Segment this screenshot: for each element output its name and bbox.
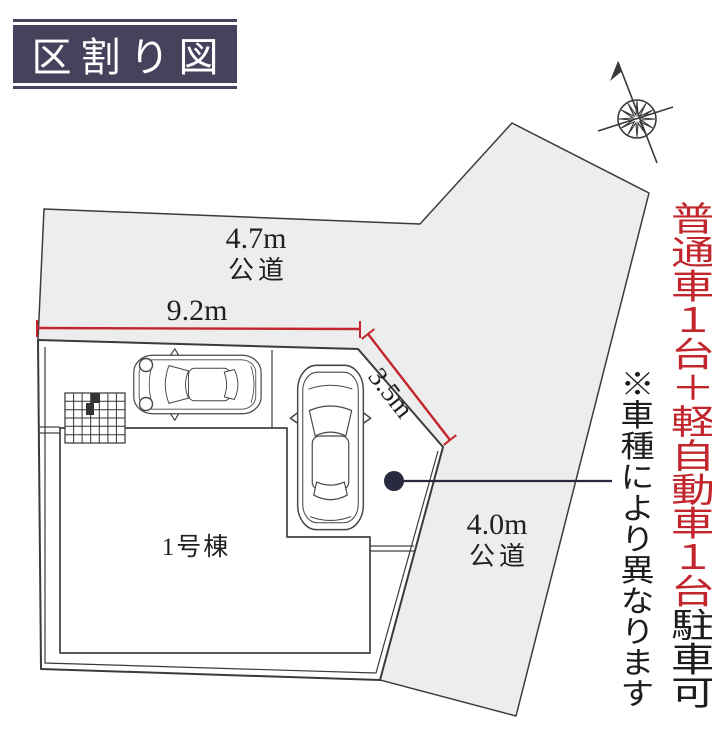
frontage-dimension-label: 9.2m (122, 294, 272, 328)
building-label: 1号棟 (130, 534, 262, 562)
road-right-label: 4.0m 公道 (440, 508, 554, 571)
road-right-width: 4.0m (440, 508, 554, 542)
road-right-type: 公道 (440, 542, 554, 571)
site-plan-drawing (0, 0, 712, 745)
regular-car-top-view-icon (290, 365, 370, 529)
page-title-box: 区割り図 (13, 19, 237, 89)
title-bottom-rule (13, 83, 237, 86)
kei-car-top-view-icon (134, 349, 261, 421)
road-top-width: 4.7m (200, 222, 312, 256)
page-title: 区割り図 (23, 25, 228, 83)
parking-capacity-suffix: 駐車可 (664, 608, 712, 710)
compass-north-icon (598, 61, 673, 163)
parking-capacity-note: 普通車１台＋軽自動車１台駐車可 (666, 201, 710, 709)
parking-disclaimer: ※車種により異なります (616, 368, 650, 708)
title-top-rule (13, 22, 237, 25)
road-top-type: 公道 (200, 256, 312, 285)
plot-layout-page: 区割り図 4.7m 公道 9.2m 3.5m 4.0m 公道 1号棟 普通車１台… (0, 0, 712, 745)
parking-capacity-highlight: 普通車１台＋軽自動車１台 (664, 201, 712, 608)
leader-dot (384, 471, 404, 491)
tile-grid (65, 393, 125, 443)
road-top-label: 4.7m 公道 (200, 222, 312, 285)
